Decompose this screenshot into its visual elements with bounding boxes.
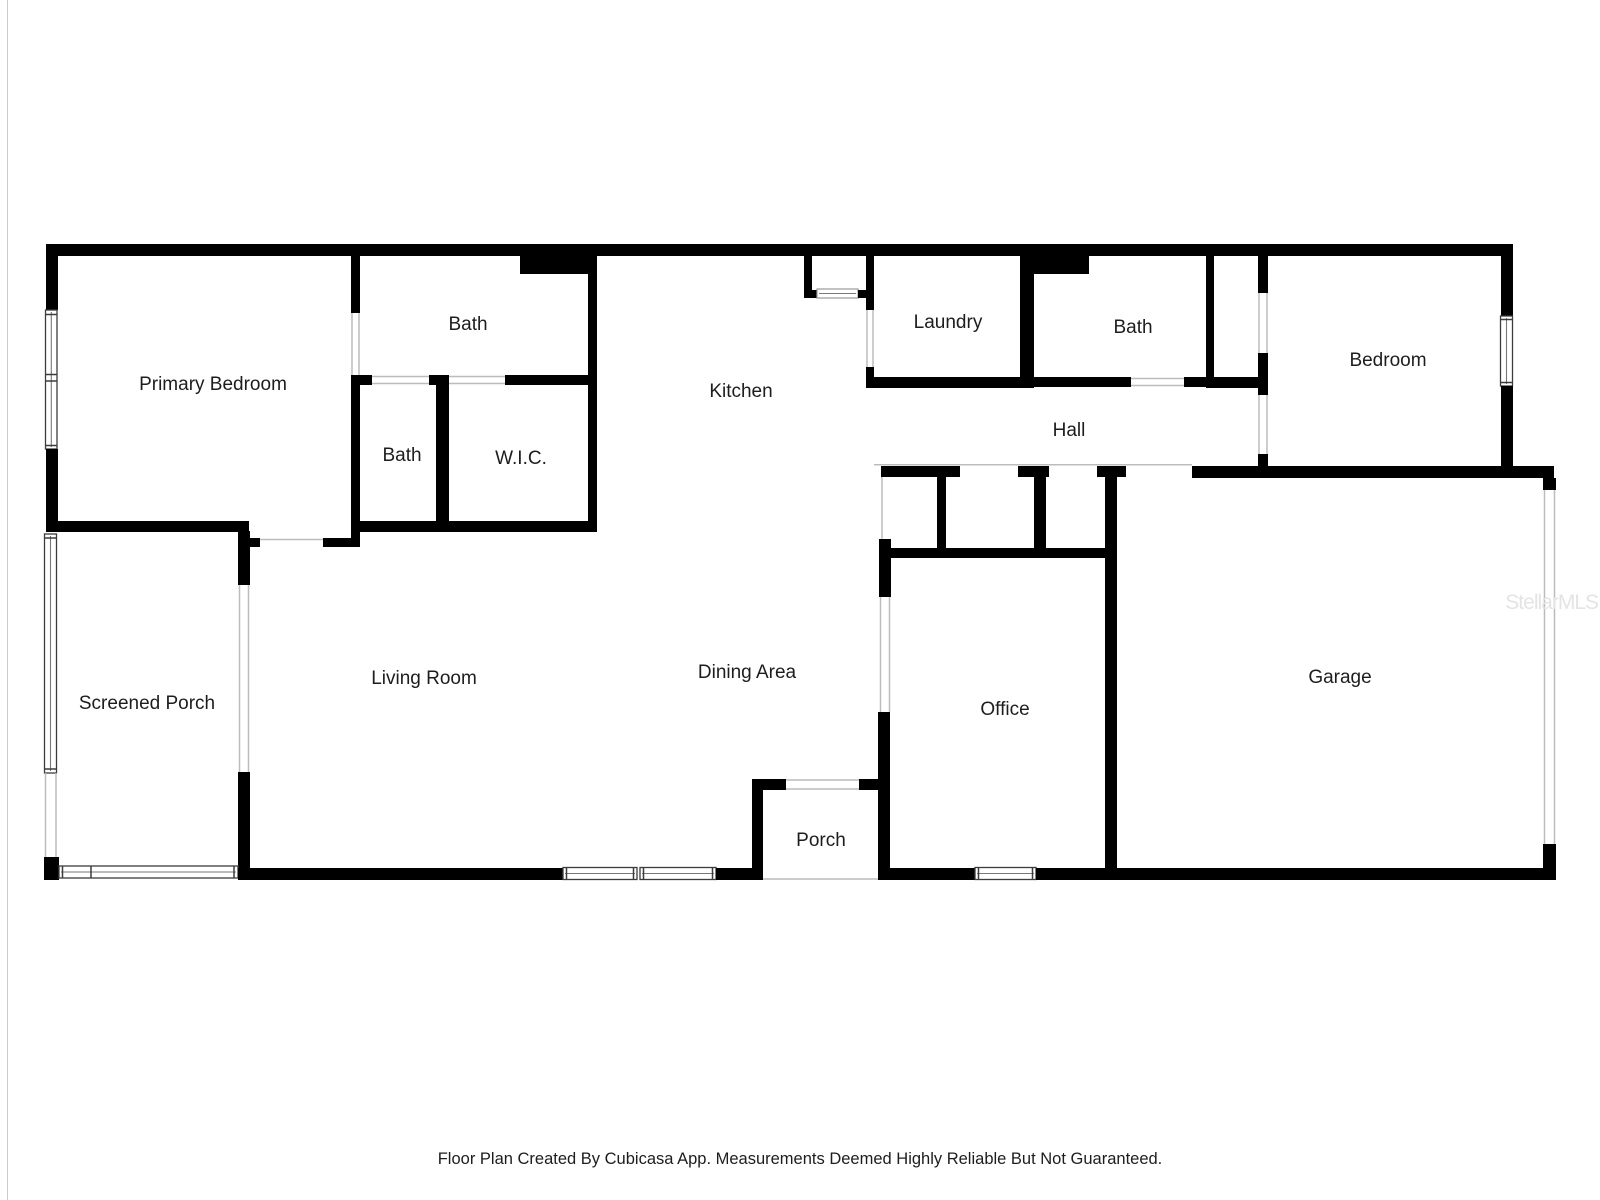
svg-text:Office: Office <box>980 699 1029 720</box>
svg-text:Bath: Bath <box>1113 317 1152 338</box>
svg-text:Laundry: Laundry <box>914 312 983 333</box>
svg-text:Bath: Bath <box>382 445 421 466</box>
svg-text:Floor Plan Created By Cubicasa: Floor Plan Created By Cubicasa App. Meas… <box>438 1150 1163 1168</box>
svg-text:Garage: Garage <box>1308 667 1371 688</box>
svg-text:Screened Porch: Screened Porch <box>79 693 215 714</box>
svg-text:Hall: Hall <box>1053 420 1086 441</box>
svg-text:W.I.C.: W.I.C. <box>495 448 547 469</box>
svg-text:Primary Bedroom: Primary Bedroom <box>139 374 287 395</box>
svg-text:Living Room: Living Room <box>371 668 477 689</box>
svg-text:Kitchen: Kitchen <box>709 381 772 402</box>
svg-text:Bath: Bath <box>448 314 487 335</box>
svg-text:Porch: Porch <box>796 830 846 851</box>
svg-text:Dining Area: Dining Area <box>698 662 797 683</box>
svg-text:Bedroom: Bedroom <box>1349 350 1426 371</box>
svg-text:StellarMLS: StellarMLS <box>1505 591 1599 614</box>
